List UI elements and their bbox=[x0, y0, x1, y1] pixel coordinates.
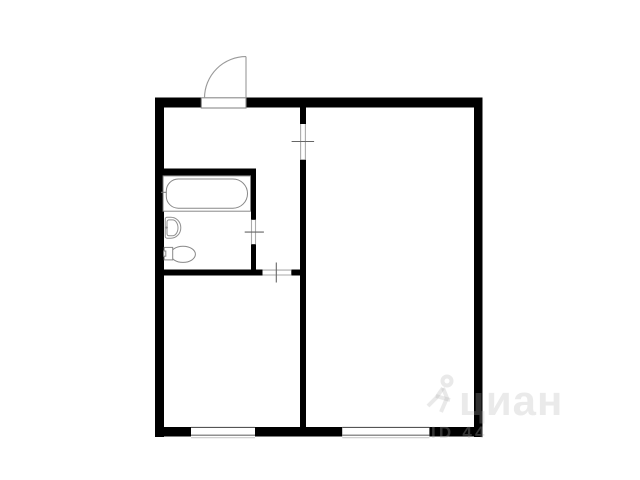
svg-text:ID 44: ID 44 bbox=[431, 423, 488, 442]
svg-text:циан: циан bbox=[459, 377, 563, 424]
